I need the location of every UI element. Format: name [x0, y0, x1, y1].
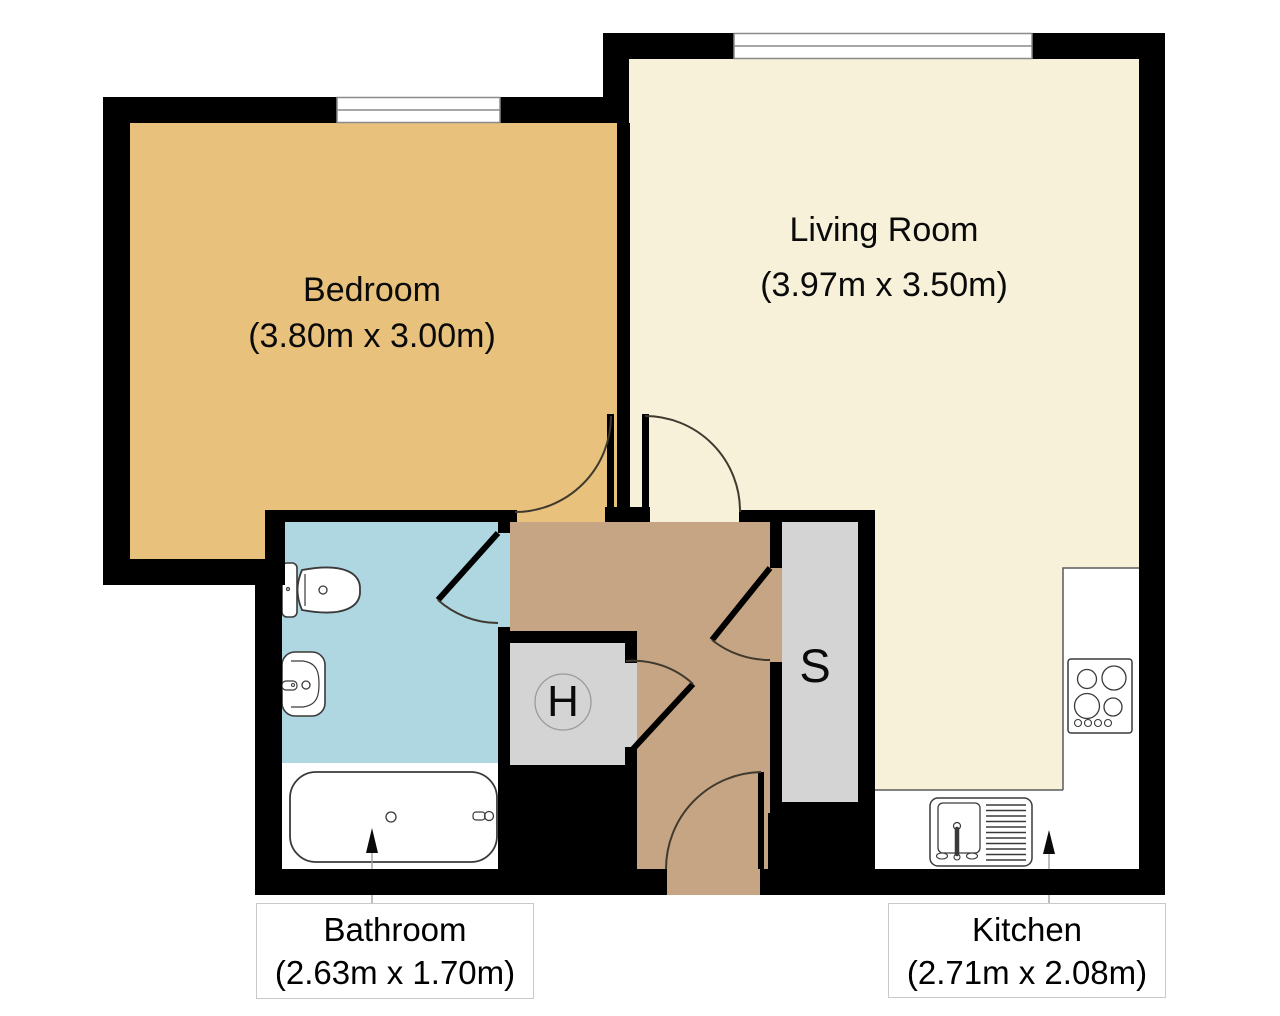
kitchen-sink-icon	[930, 798, 1032, 866]
living-room-name: Living Room	[634, 203, 1134, 258]
wall-segment	[1139, 33, 1165, 895]
wall-segment	[760, 869, 1165, 895]
wall-segment	[770, 522, 782, 568]
bedroom-dims: (3.80m x 3.00m)	[132, 313, 612, 359]
hallway-floor	[637, 631, 770, 869]
bathroom-door-gap	[498, 533, 510, 627]
bathroom-label: Bathroom (2.63m x 1.70m)	[256, 903, 534, 999]
floor-plan-page: Bedroom (3.80m x 3.00m) Living Room (3.9…	[0, 0, 1280, 1016]
bedroom-window	[337, 98, 500, 123]
living-room-label: Living Room (3.97m x 3.50m)	[634, 203, 1134, 313]
floor-plan-drawing	[0, 0, 1280, 1016]
bathroom-name: Bathroom	[257, 908, 533, 951]
living-room-dims: (3.97m x 3.50m)	[634, 258, 1134, 313]
wall-segment	[770, 802, 875, 813]
hob-icon	[1068, 659, 1132, 733]
h-closet-door-gap	[625, 663, 637, 747]
wall-segment	[605, 507, 650, 522]
h-closet-letter: H	[547, 677, 579, 727]
wall-segment	[603, 33, 629, 123]
wall-segment	[768, 813, 875, 869]
toilet-icon	[282, 563, 360, 617]
s-closet-letter: S	[799, 638, 830, 693]
bedroom-label: Bedroom (3.80m x 3.00m)	[132, 267, 612, 359]
wall-segment	[739, 510, 873, 522]
living-room-door-leaf	[642, 414, 649, 512]
wall-segment	[498, 631, 637, 643]
kitchen-name: Kitchen	[889, 908, 1165, 951]
entrance-doorway	[667, 869, 760, 895]
bedroom-name: Bedroom	[132, 267, 612, 313]
wall-segment	[255, 585, 282, 895]
h-closet-label: H	[513, 676, 613, 728]
wall-segment	[265, 510, 517, 522]
wall-segment	[498, 765, 637, 777]
wall-segment	[498, 627, 510, 765]
wall-segment	[103, 97, 130, 585]
wall-segment	[617, 123, 630, 522]
kitchen-label: Kitchen (2.71m x 2.08m)	[888, 903, 1166, 998]
wall-segment	[103, 559, 285, 585]
kitchen-dims: (2.71m x 2.08m)	[889, 951, 1165, 994]
bathroom-floor	[282, 522, 498, 763]
living-room-window	[734, 34, 1032, 59]
wall-segment	[498, 522, 510, 533]
bathtub-icon	[290, 772, 497, 862]
bathroom-dims: (2.63m x 1.70m)	[257, 951, 533, 994]
s-closet-label: S	[765, 636, 865, 694]
sink-icon	[282, 652, 325, 716]
wall-segment	[255, 869, 667, 895]
